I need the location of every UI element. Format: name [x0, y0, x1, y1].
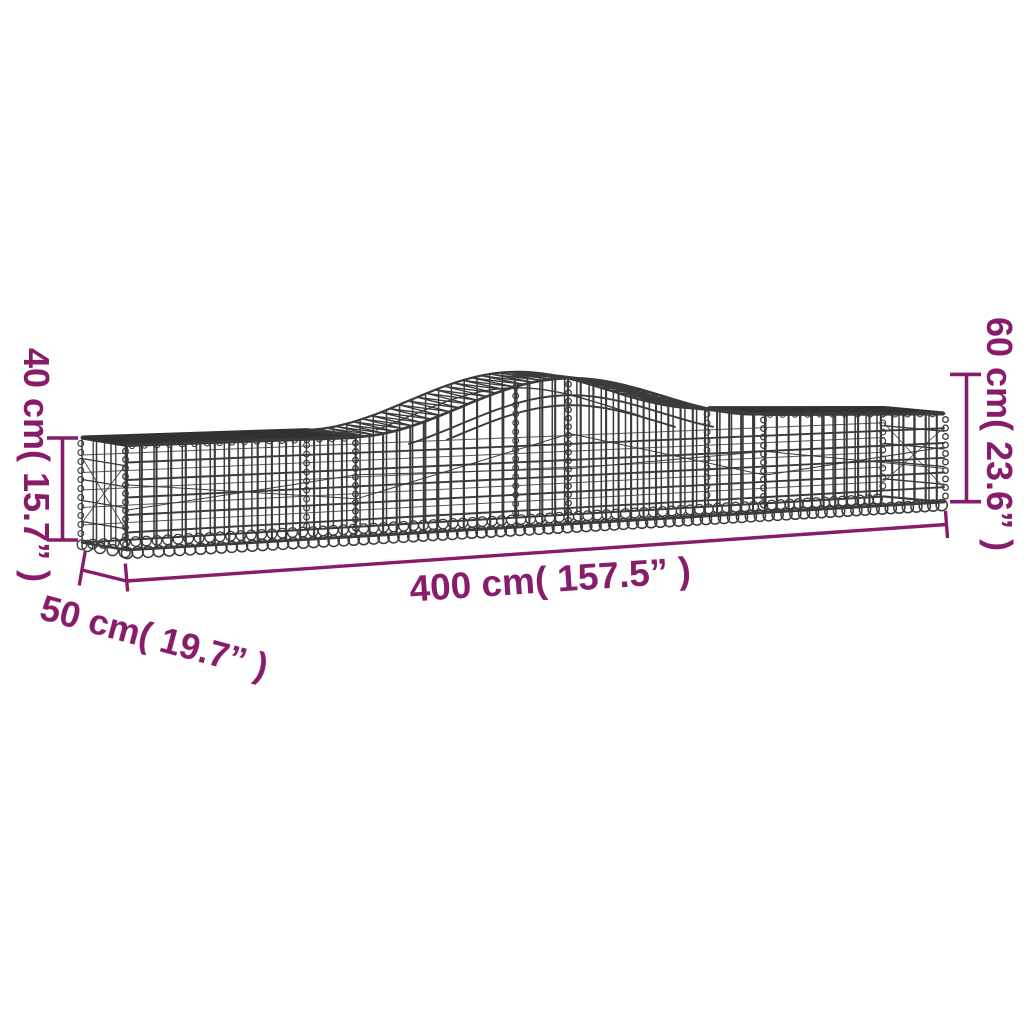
svg-text:40 cm( 15.7” ): 40 cm( 15.7” ) — [16, 348, 57, 582]
svg-text:60 cm( 23.6” ): 60 cm( 23.6” ) — [979, 317, 1020, 551]
